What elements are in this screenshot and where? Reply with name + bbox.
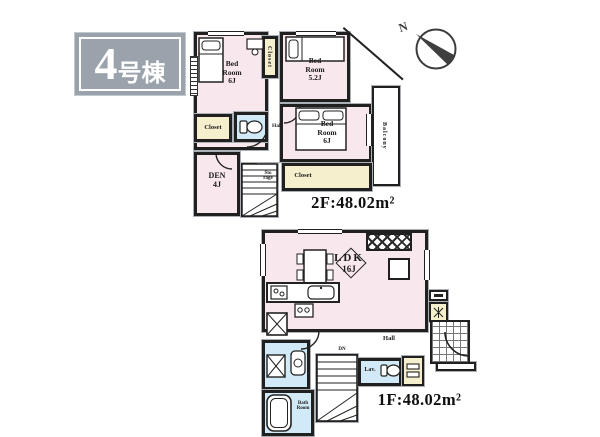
label-den: DEN 4J [200,170,234,192]
window-1f-east [424,250,430,280]
label-ldk-name: LDK [334,252,364,264]
window-2f-west-ladder [190,56,198,96]
label-den-size: 4J [213,181,221,190]
label-bedroom-ne: Bed Room 5.2J [292,54,338,86]
kitchen-counter-icon [266,282,340,303]
door-arc-ldk-hall [300,330,320,350]
label-storage-2f-text: Sto rage [262,171,275,182]
building-number-suffix: 号棟 [118,53,166,88]
stairs-icon-1f [316,354,358,422]
window-2f-balcony-door [366,114,372,146]
label-bedroom-nw-name: Bed Room [217,60,247,77]
label-hall-2f: Hall [267,121,287,131]
label-ldk-size: 16J [342,264,356,274]
towel-shelf-icon [406,362,420,380]
label-bathroom-text: Bath Room [295,401,311,412]
washbasin-icon [290,350,306,376]
roof-eave-line [343,27,404,80]
label-bedroom-se-name: Bed Room [312,120,342,137]
label-bedroom-nw: Bed Room 6J [206,58,258,88]
label-closet-top: Closet [266,42,272,72]
floor-storage-hatch [388,258,410,280]
label-lavatory: Lav. [360,364,380,376]
label-balcony: Balcony [381,108,387,164]
refrigerator-space-icon [266,312,288,336]
window-1f-west [260,244,266,276]
shoe-cabinet-upper [429,290,448,301]
label-bedroom-ne-name: Bed Room [300,57,330,74]
label-closet-south: Closet [286,168,320,184]
label-ldk: LDK 16J [326,248,372,278]
building-number: 4 [95,41,118,87]
label-bedroom-nw-size: 6J [228,77,236,85]
label-bathroom: Bath Room [292,397,314,415]
floorplan-canvas: 4 号棟 N [0,0,600,437]
built-in-counter-hatched [366,233,412,251]
desk-icon-nw [246,38,264,56]
toilet-icon-2f [239,118,263,136]
label-bedroom-se-size: 6J [323,137,331,145]
label-storage-2f: Sto rage [259,166,277,186]
building-number-badge: 4 号棟 [74,32,186,96]
label-bedroom-ne-size: 5.2J [308,74,321,82]
toilet-icon-1f [380,362,401,379]
bathtub-icon [266,394,292,432]
door-arc-den [215,152,233,170]
compass-icon [404,18,468,76]
window-1f-top [298,229,342,234]
label-hall-1f: Hall [378,334,400,344]
area-label-1f: 1F:48.02m² [362,390,477,410]
stove-icon [294,303,314,318]
label-bedroom-se: Bed Room 6J [304,116,350,150]
building-number-frame: 4 号棟 [79,37,181,91]
washing-machine-icon [266,354,286,378]
label-closet-west: Closet [196,118,230,138]
plant-mark-icon [432,306,445,319]
door-arc-entrance [444,331,470,357]
label-stairs-dn: DN [334,346,350,354]
area-label-2f: 2F:48.02m² [298,193,408,213]
window-2f-nw [208,31,244,36]
